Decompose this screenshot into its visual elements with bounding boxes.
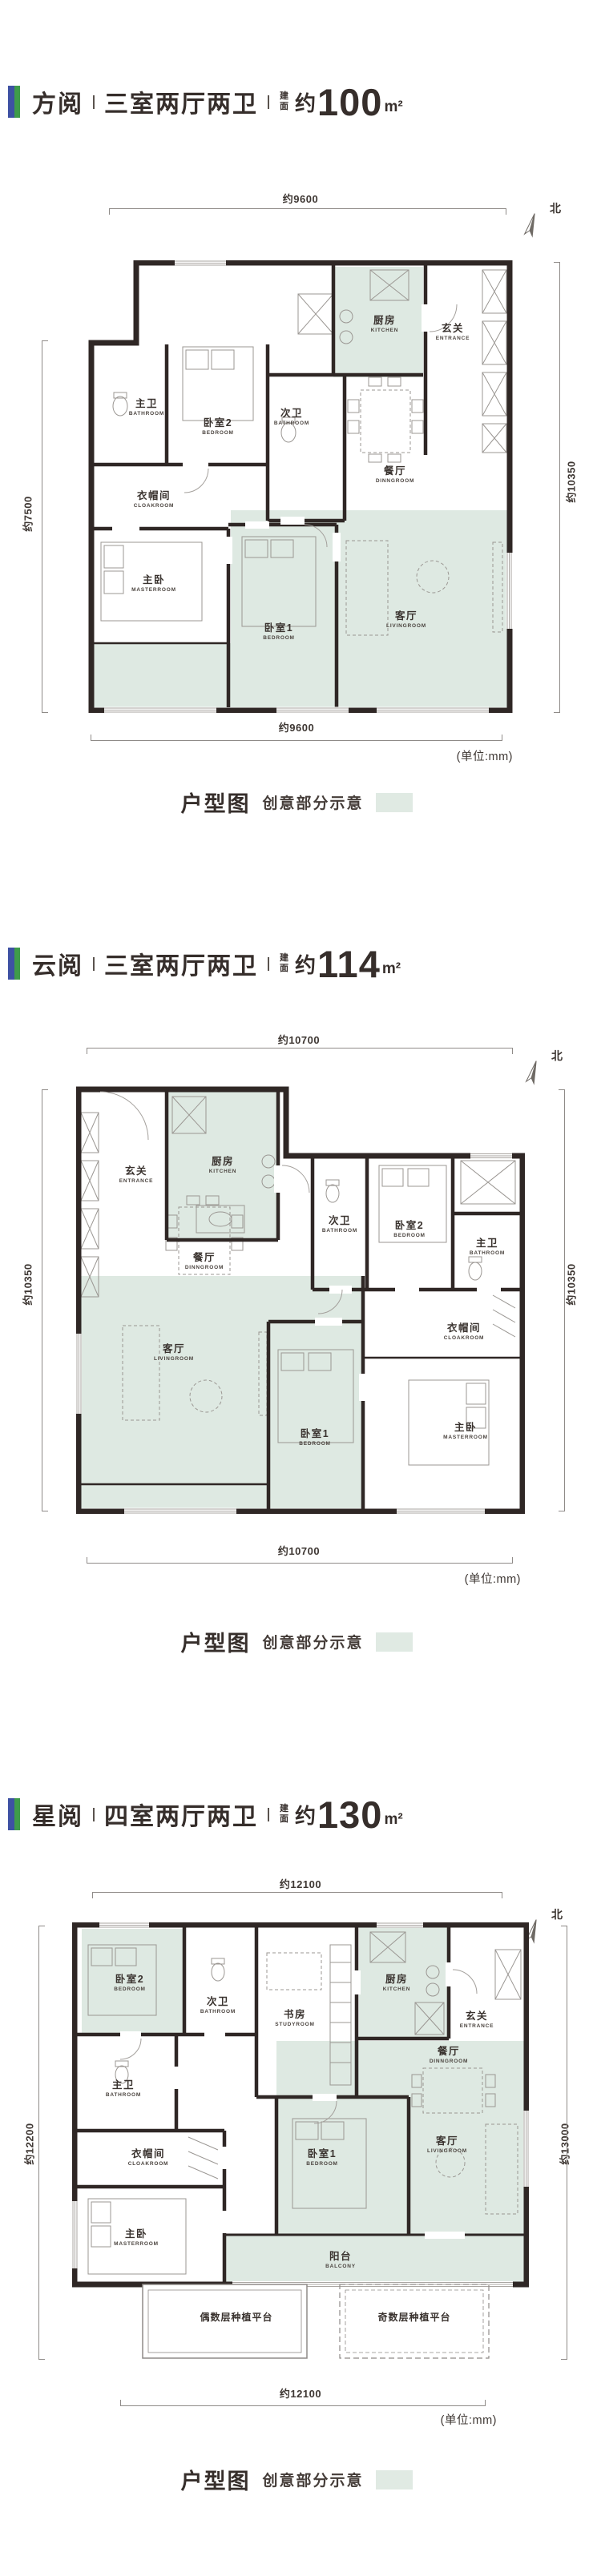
area-value: 130 <box>317 1796 382 1833</box>
plan-layout: 三室两厅两卫 <box>104 946 258 981</box>
compass-needle-icon <box>521 211 542 239</box>
caption: 户型图 创意部分示意 <box>0 2464 593 2495</box>
room-label-living: 客厅LIVINGROOM <box>427 2132 467 2154</box>
dim-left-bracket <box>42 1089 48 1511</box>
room-label-bedroom2: 卧室2BEDROOM <box>393 1217 426 1238</box>
dim-top-bracket <box>109 208 506 215</box>
accent-bar-icon <box>8 1798 20 1830</box>
dim-right-label: 约10350 <box>563 1262 579 1307</box>
area-unit: m² <box>384 1811 402 1829</box>
title-separator <box>93 1808 95 1821</box>
room-label-bedroom2: 卧室2BEDROOM <box>202 414 234 436</box>
area-value: 100 <box>317 83 382 121</box>
room-label-master-bedroom: 主卧MASTERROOM <box>443 1419 488 1440</box>
plan-layout: 四室两厅两卫 <box>104 1797 258 1832</box>
dim-bottom-bracket <box>87 1557 513 1564</box>
room-label-second-bath: 次卫BATHROOM <box>200 1993 236 2015</box>
room-label-bedroom1: 卧室1BEDROOM <box>306 2145 338 2167</box>
room-label-master-bedroom: 主卧MASTERROOM <box>131 571 176 593</box>
compass-label: 北 <box>551 1906 563 1922</box>
room-label-master-bath: 主卫BATHROOM <box>106 2076 141 2098</box>
title-separator <box>268 95 269 109</box>
dim-right-label: 约10350 <box>563 460 579 505</box>
floorplan-fangyue: 厨房KITCHEN 玄关ENTRANCE 主卫BATHROOM 卧室2BEDRO… <box>88 260 513 713</box>
compass-label: 北 <box>550 200 561 216</box>
caption-subtitle: 创意部分示意 <box>262 1631 363 1652</box>
room-label-second-bath: 次卫BATHROOM <box>322 1212 357 1234</box>
dim-left-bracket <box>42 340 48 713</box>
room-label-entrance: 玄关ENTRANCE <box>460 2007 494 2029</box>
plan-section-yunyue: 云阅 三室两厅两卫 建面 约 114 m² 约10700 北 约10350 约1… <box>0 859 593 1717</box>
plan-name: 云阅 <box>32 946 83 981</box>
dim-top-bracket <box>87 1048 513 1054</box>
compass-needle-icon <box>522 1059 543 1086</box>
plan-title: 方阅 三室两厅两卫 建面 约 100 m² <box>8 82 403 122</box>
room-label-dining: 餐厅DINNGROOM <box>430 2043 468 2064</box>
room-label-entrance: 玄关ENTRANCE <box>436 320 470 341</box>
dim-left-label: 约12200 <box>22 2122 37 2167</box>
room-label-cloakroom: 衣帽间CLOAKROOM <box>444 1319 485 1341</box>
dim-bottom-bracket <box>120 2400 486 2406</box>
plan-section-xingyue: 星阅 四室两厅两卫 建面 约 130 m² 约12100 北 约12200 约1… <box>0 1717 593 2576</box>
room-label-master-bedroom: 主卧MASTERROOM <box>114 2225 159 2247</box>
dim-left-bracket <box>38 1926 45 2360</box>
compass: 北 <box>519 200 564 245</box>
dim-left-label: 约10350 <box>20 1262 35 1307</box>
plan-section-fangyue: 方阅 三室两厅两卫 建面 约 100 m² 约9600 北 约7500 约103… <box>0 0 593 859</box>
dim-top-label: 约12100 <box>220 1876 381 1891</box>
accent-bar-icon <box>8 948 20 980</box>
room-label-second-bath: 次卫BATHROOM <box>274 405 309 426</box>
room-label-study: 书房STUDYROOM <box>275 2006 314 2027</box>
caption-subtitle: 创意部分示意 <box>262 2469 363 2490</box>
dim-right-bracket <box>561 1926 567 2360</box>
area-approx: 约 <box>295 949 316 979</box>
area-label: 建面 <box>280 1804 291 1824</box>
room-label-dining: 餐厅DINNGROOM <box>376 462 414 484</box>
title-separator <box>93 95 95 109</box>
room-label-master-bath: 主卫BATHROOM <box>470 1234 505 1256</box>
room-label-bedroom1: 卧室1BEDROOM <box>299 1425 331 1447</box>
accent-bar-icon <box>8 86 20 118</box>
title-separator <box>93 957 95 971</box>
room-label-bedroom1: 卧室1BEDROOM <box>263 619 295 641</box>
floorplan-drawing <box>76 1085 525 1514</box>
title-separator <box>268 957 269 971</box>
title-separator <box>268 1808 269 1821</box>
dim-bottom-label: 约10700 <box>219 1543 379 1558</box>
room-label-balcony: 阳台BALCONY <box>325 2248 356 2269</box>
room-label-living: 客厅LIVINGROOM <box>386 607 426 629</box>
dim-right-bracket <box>559 1089 565 1511</box>
room-label-dining: 餐厅DINNGROOM <box>185 1249 224 1270</box>
unit-note: (单位:mm) <box>385 2411 497 2428</box>
caption: 户型图 创意部分示意 <box>0 1626 593 1657</box>
dim-bottom-label: 约9600 <box>216 719 377 735</box>
area-value: 114 <box>317 945 381 983</box>
dim-top-label: 约10700 <box>219 1032 379 1047</box>
area-label: 建面 <box>280 953 291 973</box>
area-unit: m² <box>382 960 401 978</box>
room-label-kitchen: 厨房KITCHEN <box>383 1970 411 1992</box>
caption-color-swatch <box>376 2470 413 2489</box>
plan-title: 云阅 三室两厅两卫 建面 约 114 m² <box>8 944 401 984</box>
caption-title: 户型图 <box>180 2464 250 2495</box>
caption-title: 户型图 <box>180 787 250 818</box>
room-label-entrance: 玄关ENTRANCE <box>119 1162 154 1184</box>
room-label-cloakroom: 衣帽间CLOAKROOM <box>128 2145 169 2167</box>
caption-title: 户型图 <box>180 1626 250 1657</box>
caption-color-swatch <box>376 793 413 812</box>
platform-label-even: 偶数层种植平台 <box>200 2310 272 2324</box>
unit-note: (单位:mm) <box>409 1570 521 1587</box>
dim-left-label: 约7500 <box>20 495 35 533</box>
area-approx: 约 <box>295 87 316 117</box>
floorplan-yunyue: 玄关ENTRANCE 厨房KITCHEN 次卫BATHROOM 卧室2BEDRO… <box>76 1085 525 1514</box>
plan-title: 星阅 四室两厅两卫 建面 约 130 m² <box>8 1794 403 1834</box>
plan-name: 星阅 <box>32 1797 83 1832</box>
room-label-kitchen: 厨房KITCHEN <box>209 1153 237 1174</box>
unit-note: (单位:mm) <box>401 747 513 764</box>
compass: 北 <box>521 1048 566 1093</box>
area-approx: 约 <box>295 1800 316 1829</box>
caption-subtitle: 创意部分示意 <box>262 791 363 813</box>
room-label-living: 客厅LIVINGROOM <box>154 1340 194 1362</box>
compass-label: 北 <box>551 1048 563 1064</box>
dim-right-bracket <box>554 262 560 713</box>
room-label-cloakroom: 衣帽间CLOAKROOM <box>134 487 175 509</box>
caption: 户型图 创意部分示意 <box>0 787 593 818</box>
plan-name: 方阅 <box>32 84 83 119</box>
room-label-kitchen: 厨房KITCHEN <box>371 312 399 333</box>
floorplan-xingyue: 卧室2BEDROOM 次卫BATHROOM 书房STUDYROOM 厨房KITC… <box>72 1922 529 2363</box>
caption-color-swatch <box>376 1632 413 1652</box>
dim-bottom-bracket <box>91 735 502 741</box>
dim-top-bracket <box>92 1892 502 1898</box>
dim-bottom-label: 约12100 <box>220 2385 381 2401</box>
room-label-master-bath: 主卫BATHROOM <box>129 395 164 417</box>
area-label: 建面 <box>280 91 291 111</box>
room-label-bedroom2: 卧室2BEDROOM <box>114 1970 146 1992</box>
platform-label-odd: 奇数层种植平台 <box>377 2310 450 2324</box>
plan-layout: 三室两厅两卫 <box>104 84 258 119</box>
dim-top-label: 约9600 <box>220 191 381 206</box>
area-unit: m² <box>384 99 402 116</box>
